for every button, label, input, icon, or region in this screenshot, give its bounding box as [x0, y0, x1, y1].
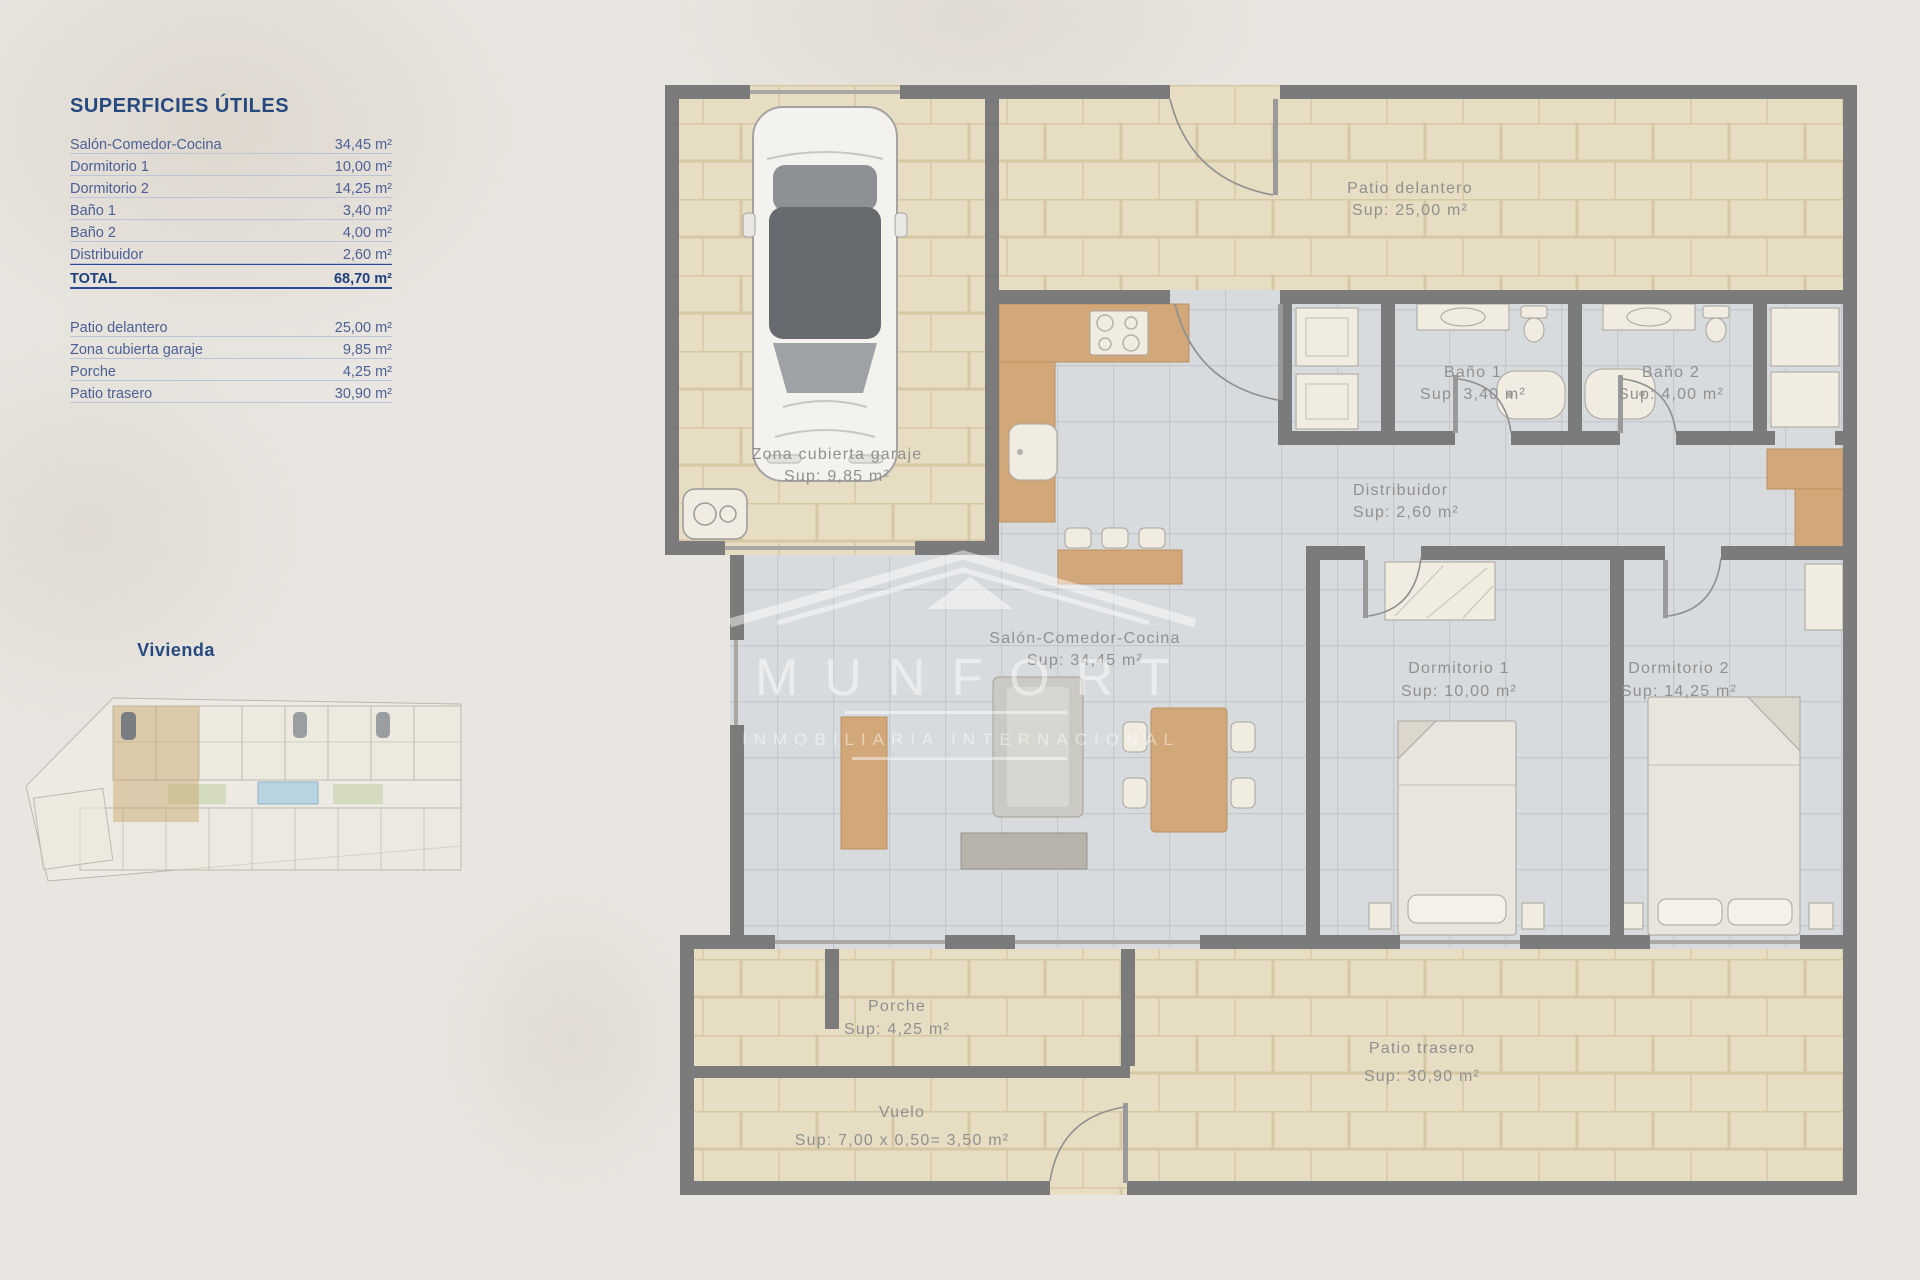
chair-icon: [1231, 778, 1255, 808]
room-label-patio-delantero: Patio delantero: [1347, 180, 1473, 197]
garage-gate-window: [750, 90, 900, 94]
room-label-salon: Salón-Comedor-Cocina: [989, 630, 1180, 647]
bedroom2-door: [1663, 560, 1668, 618]
watermark-subtitle: INMOBILIARIA INTERNACIONAL: [742, 730, 1180, 749]
room-label-distribuidor: Distribuidor: [1353, 482, 1448, 499]
surface-row: Dormitorio 2 14,25 m²: [70, 176, 392, 198]
surfaces-panel: SUPERFICIES ÚTILES Salón-Comedor-Cocina …: [70, 95, 392, 403]
surface-row-label: Dormitorio 2: [70, 181, 149, 197]
bathroom2-door: [1618, 375, 1623, 433]
surface-row: Patio delantero 25,00 m²: [70, 315, 392, 337]
stool-icon: [1139, 528, 1165, 548]
nightstand-icon: [1623, 903, 1643, 929]
toilet-icon: [1703, 306, 1729, 318]
floor-plan: Patio delantero Sup: 25,00 m² Zona cubie…: [665, 85, 1857, 1195]
surface-row-value: 25,00 m²: [335, 320, 392, 336]
surface-total-label: TOTAL: [70, 271, 117, 287]
room-label-vuelo: Vuelo: [879, 1104, 925, 1121]
nightstand-icon: [1369, 903, 1391, 929]
surface-total-value: 68,70 m²: [334, 271, 392, 287]
room-label-patio-trasero: Patio trasero: [1369, 1040, 1475, 1057]
room-sup-dormitorio1: Sup: 10,00 m²: [1401, 683, 1517, 700]
pillow-icon: [1408, 895, 1506, 923]
kitchen-peninsula: [1058, 528, 1182, 584]
nightstand-icon: [1809, 903, 1833, 929]
room-sup-porche: Sup: 4,25 m²: [844, 1021, 950, 1038]
kitchen-sink-icon: [1009, 424, 1057, 480]
dining-table-icon: [1151, 708, 1227, 832]
room-sup-bano1: Sup: 3,40 m²: [1420, 386, 1526, 403]
mini-car-icon: [293, 712, 307, 738]
surface-row: Baño 2 4,00 m²: [70, 220, 392, 242]
surface-row: Dormitorio 1 10,00 m²: [70, 154, 392, 176]
wardrobe-icon: [1385, 562, 1495, 620]
surface-row: Porche 4,25 m²: [70, 359, 392, 381]
surface-row: Zona cubierta garaje 9,85 m²: [70, 337, 392, 359]
toilet-icon: [1706, 318, 1726, 342]
surface-total-row: TOTAL 68,70 m²: [70, 264, 392, 289]
surface-row: Distribuidor 2,60 m²: [70, 242, 392, 264]
watermark-name: MUNFORT: [755, 649, 1196, 707]
pillow-icon: [1658, 899, 1722, 925]
bedroom1-door: [1363, 560, 1368, 618]
patio-trasero-floor: [680, 935, 1857, 1195]
toilet-icon: [1524, 318, 1544, 342]
surface-row-value: 4,00 m²: [343, 225, 392, 241]
site-plan-title: Vivienda: [96, 640, 256, 661]
bathroom1-door: [1453, 375, 1458, 433]
surface-row-label: Porche: [70, 364, 116, 380]
garden-patch: [333, 784, 383, 804]
surface-row-label: Salón-Comedor-Cocina: [70, 137, 222, 153]
meter-box-icon: [683, 489, 747, 539]
garage-door-line: [725, 546, 915, 550]
front-gate-door: [1273, 99, 1278, 195]
surface-row-value: 2,60 m²: [343, 247, 392, 263]
mini-car-icon: [121, 712, 136, 740]
surface-row-value: 14,25 m²: [335, 181, 392, 197]
surface-row-label: Zona cubierta garaje: [70, 342, 203, 358]
surface-row: Baño 1 3,40 m²: [70, 198, 392, 220]
surface-row-label: Patio delantero: [70, 320, 168, 336]
surface-row-value: 4,25 m²: [343, 364, 392, 380]
entrance-door: [1278, 304, 1283, 400]
window-line: [1650, 940, 1800, 944]
nightstand-icon: [1522, 903, 1544, 929]
room-label-dormitorio2: Dormitorio 2: [1628, 660, 1730, 677]
room-label-bano1: Baño 1: [1444, 364, 1502, 381]
surface-row-label: Dormitorio 1: [70, 159, 149, 175]
surface-row-value: 34,45 m²: [335, 137, 392, 153]
room-sup-vuelo: Sup: 7,00 x 0,50= 3,50 m²: [795, 1132, 1010, 1149]
surface-row-label: Baño 1: [70, 203, 116, 219]
surface-row-value: 3,40 m²: [343, 203, 392, 219]
room-sup-dormitorio2: Sup: 14,25 m²: [1621, 683, 1737, 700]
room-label-dormitorio1: Dormitorio 1: [1408, 660, 1510, 677]
window-line: [1400, 940, 1520, 944]
pillow-icon: [1728, 899, 1792, 925]
pool-icon: [258, 782, 318, 804]
table-gap: [70, 289, 392, 315]
surface-row-label: Baño 2: [70, 225, 116, 241]
tv-bench-icon: [961, 833, 1087, 869]
chair-icon: [1123, 778, 1147, 808]
room-sup-distribuidor: Sup: 2,60 m²: [1353, 504, 1459, 521]
rear-gate-door: [1123, 1103, 1128, 1183]
surface-row-value: 30,90 m²: [335, 386, 392, 402]
room-label-porche: Porche: [868, 998, 926, 1015]
window-line: [734, 640, 738, 725]
toilet-icon: [1521, 306, 1547, 318]
surface-row-value: 10,00 m²: [335, 159, 392, 175]
room-sup-patio-delantero: Sup: 25,00 m²: [1352, 202, 1468, 219]
car-icon: [743, 107, 907, 481]
surface-row-label: Distribuidor: [70, 247, 143, 263]
room-sup-garaje: Sup: 9,85 m²: [784, 468, 890, 485]
room-sup-bano2: Sup: 4,00 m²: [1618, 386, 1724, 403]
surface-row: Patio trasero 30,90 m²: [70, 381, 392, 403]
surface-row-label: Patio trasero: [70, 386, 152, 402]
porch-slider-line: [775, 940, 945, 944]
mini-car-icon: [376, 712, 390, 738]
closet-icon: [1805, 564, 1843, 630]
site-plan-drawing: [18, 668, 473, 883]
surfaces-title: SUPERFICIES ÚTILES: [70, 95, 392, 118]
window-line: [1015, 940, 1200, 944]
cooktop-icon: [1090, 311, 1148, 355]
bed-icon: [1648, 697, 1800, 935]
chair-icon: [1231, 722, 1255, 752]
room-label-garaje: Zona cubierta garaje: [752, 446, 923, 463]
site-plan-panel: Vivienda: [18, 640, 473, 885]
surface-row-value: 9,85 m²: [343, 342, 392, 358]
stool-icon: [1102, 528, 1128, 548]
stool-icon: [1065, 528, 1091, 548]
surface-row: Salón-Comedor-Cocina 34,45 m²: [70, 132, 392, 154]
bed-icon: [1398, 721, 1516, 935]
room-sup-patio-trasero: Sup: 30,90 m²: [1364, 1068, 1480, 1085]
room-label-bano2: Baño 2: [1642, 364, 1700, 381]
